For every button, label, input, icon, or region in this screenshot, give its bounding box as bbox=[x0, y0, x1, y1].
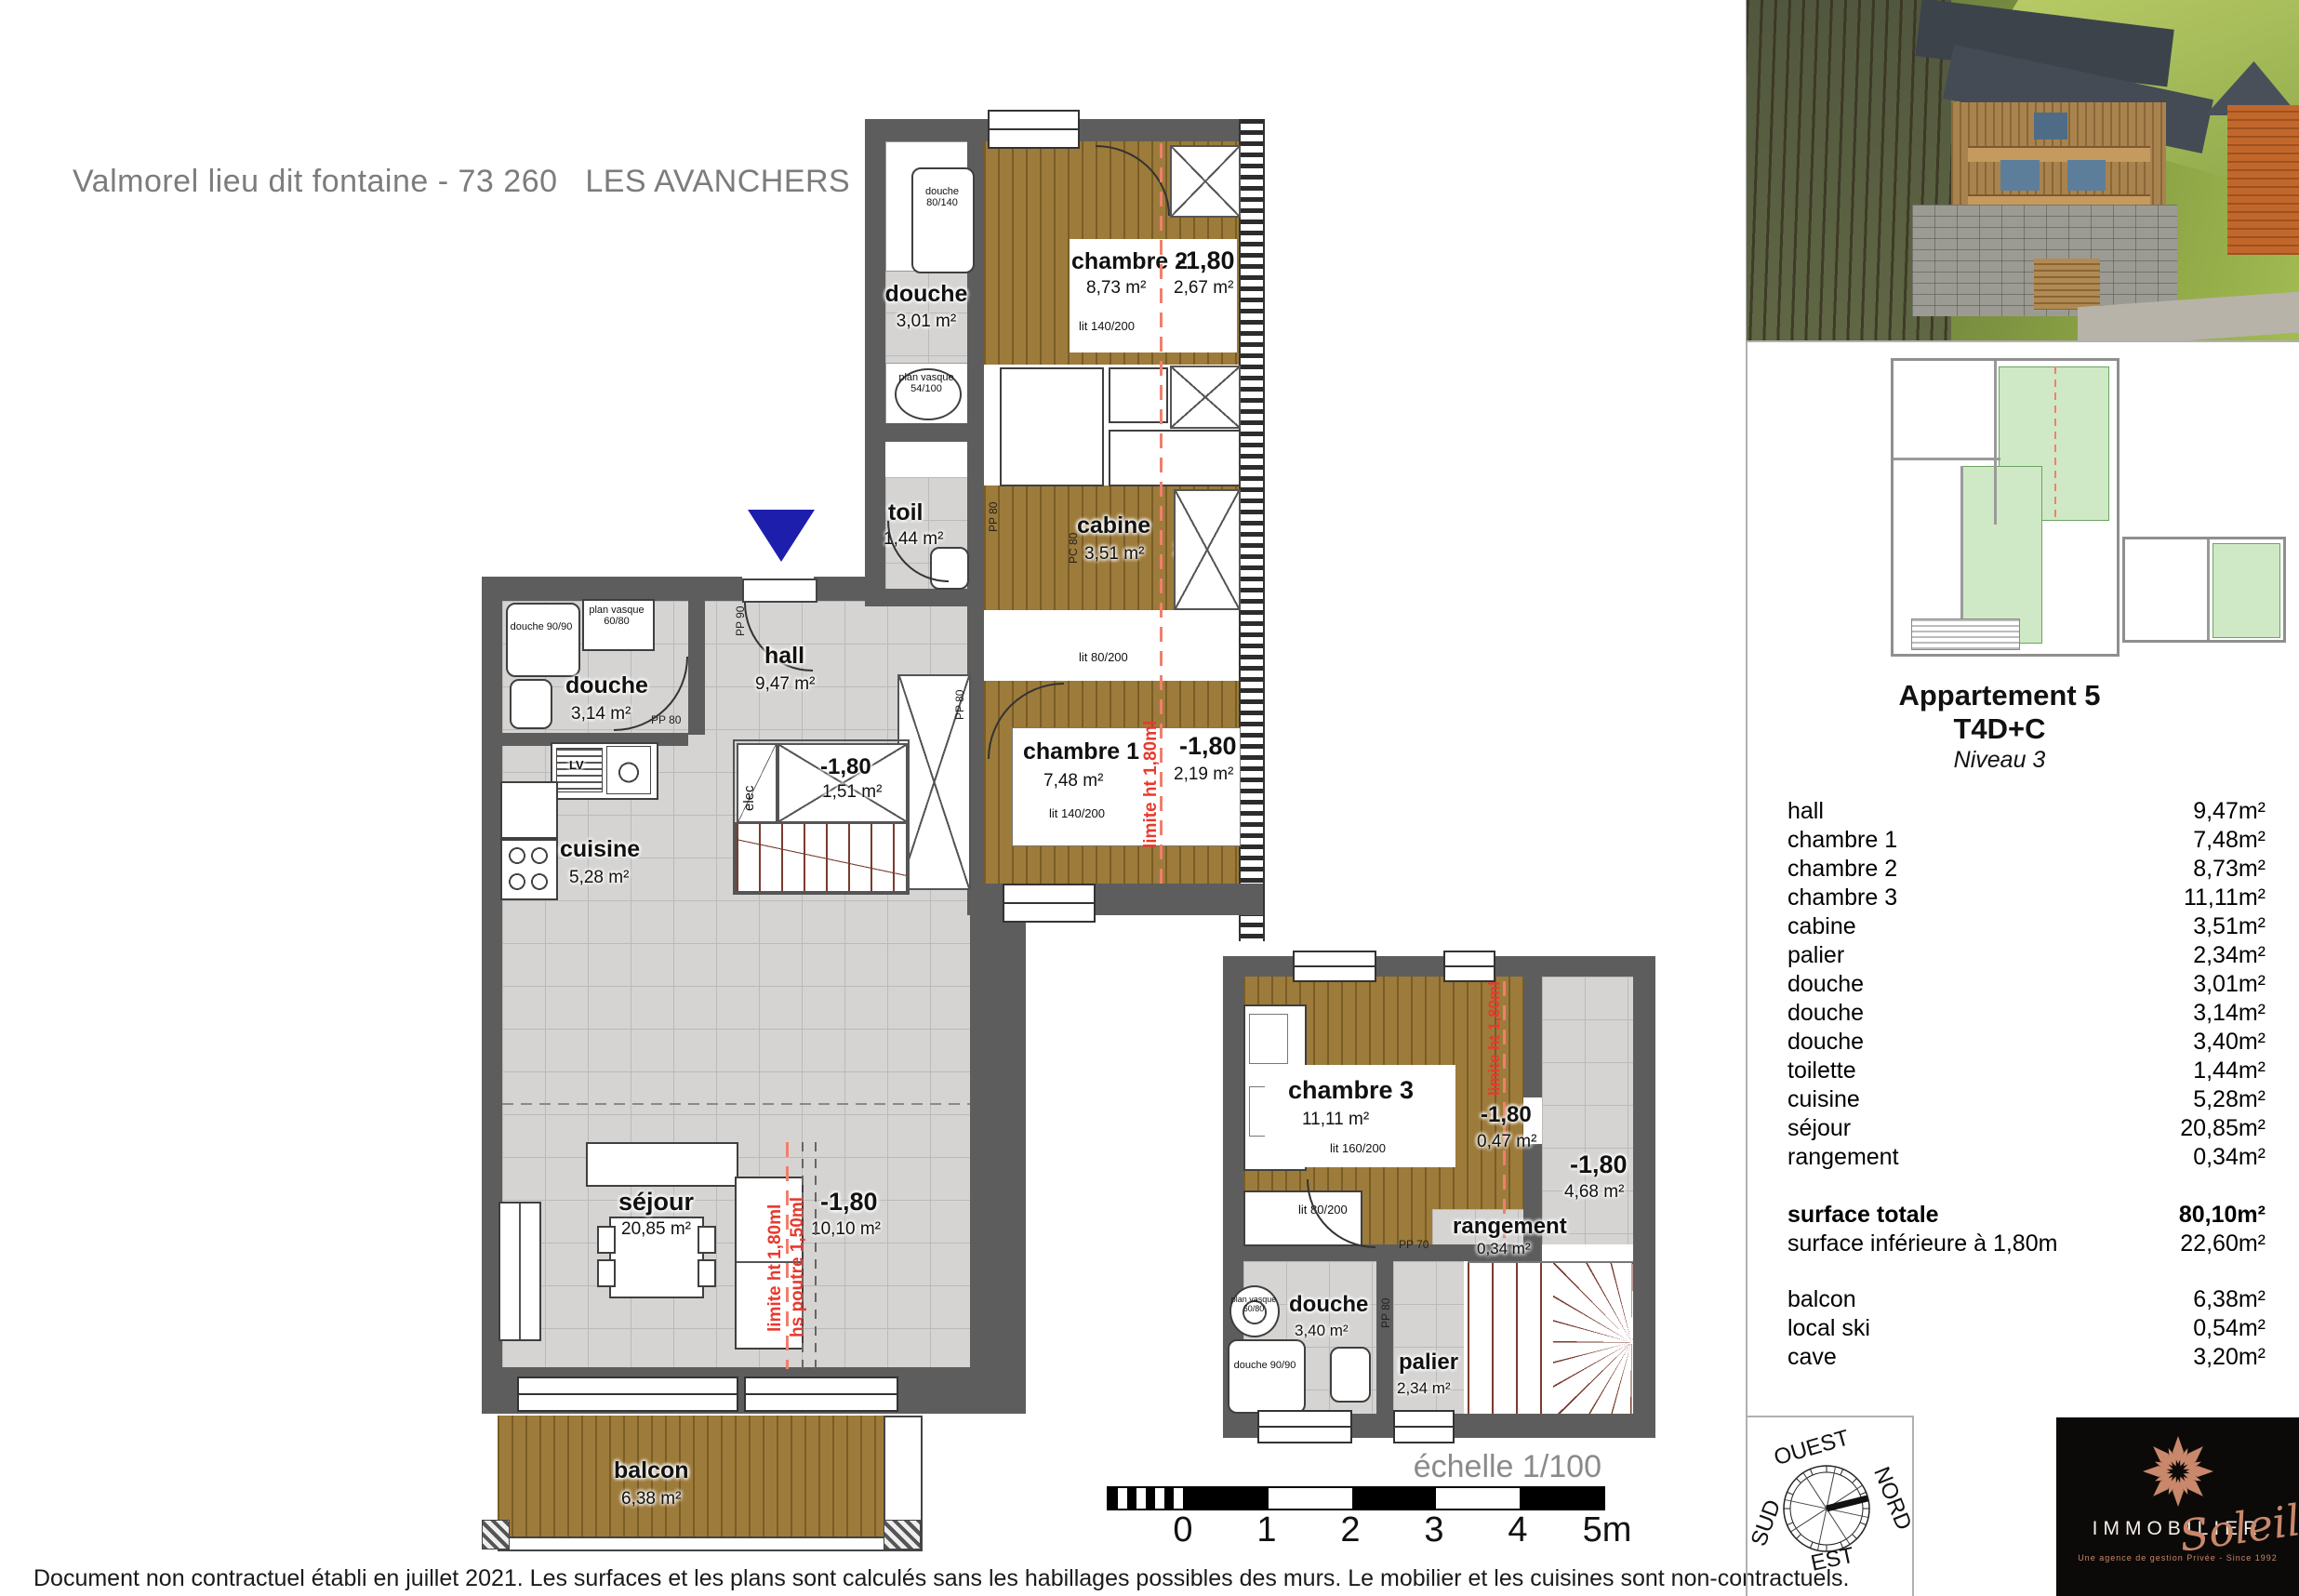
wardrobe-x bbox=[1174, 489, 1241, 610]
surface-label: chambre 2 bbox=[1787, 856, 1897, 882]
low-area-sejour: 10,10 m² bbox=[811, 1220, 881, 1239]
low-area-chambre2: 2,67 m² bbox=[1174, 279, 1233, 298]
surface-label: surface totale bbox=[1787, 1202, 1939, 1228]
wall bbox=[688, 601, 705, 735]
window bbox=[744, 1377, 898, 1412]
fridge bbox=[500, 781, 558, 839]
surface-value: 22,60m² bbox=[2180, 1230, 2266, 1257]
wall bbox=[1376, 1261, 1393, 1414]
scale-tick: 1 bbox=[1229, 1512, 1304, 1549]
surface-label: douche bbox=[1787, 1000, 1864, 1026]
surface-row: chambre 17,48m² bbox=[1787, 827, 2266, 854]
surface-value: 11,11m² bbox=[2184, 884, 2266, 911]
compass-label-south: SUD bbox=[1747, 1496, 1786, 1549]
window bbox=[1443, 951, 1495, 982]
surface-value: 1,44m² bbox=[2193, 1057, 2266, 1084]
window bbox=[1393, 1410, 1455, 1443]
surface-value: 0,34m² bbox=[2193, 1144, 2266, 1171]
scale-tick: 0 bbox=[1146, 1512, 1220, 1549]
beam-note-sejour: hs poutre 1,50ml bbox=[789, 1170, 807, 1337]
scale-caption: échelle 1/100 bbox=[1349, 1451, 1601, 1484]
keyplan-highlight bbox=[1962, 466, 2042, 644]
room-area-cabine: 3,51 m² bbox=[1084, 545, 1144, 564]
wall-hatched-east bbox=[1239, 119, 1265, 941]
room-name-chambre2: chambre 2 bbox=[1071, 249, 1188, 273]
annex-row: local ski0,54m² bbox=[1787, 1315, 2266, 1342]
bed-pillow bbox=[1249, 1014, 1288, 1064]
room-area-cuisine: 5,28 m² bbox=[569, 869, 629, 887]
surface-label: hall bbox=[1787, 798, 1824, 824]
photo-divider bbox=[1747, 340, 2299, 342]
elec-label: elec bbox=[742, 755, 757, 811]
low-area-closet: 1,51 m² bbox=[822, 783, 882, 802]
surface-value: 8,73m² bbox=[2193, 856, 2266, 883]
room-name-douche-340: douche bbox=[1289, 1293, 1368, 1316]
tv-unit bbox=[498, 1202, 541, 1341]
surface-label: douche bbox=[1787, 1029, 1864, 1055]
surface-row: rangement0,34m² bbox=[1787, 1144, 2266, 1171]
sideboard bbox=[586, 1142, 738, 1187]
low-height-sejour: -1,80 bbox=[820, 1189, 878, 1215]
wall-entry bbox=[814, 577, 874, 601]
surface-under-row: surface inférieure à 1,80m22,60m² bbox=[1787, 1230, 2266, 1257]
stairs-winder bbox=[1553, 1261, 1633, 1416]
door-label-pp80: PP 80 bbox=[954, 675, 966, 720]
low-height-chambre2: -1,80 bbox=[1177, 247, 1235, 273]
surface-row: cuisine5,28m² bbox=[1787, 1086, 2266, 1113]
chalet-window bbox=[2000, 160, 2040, 191]
wall bbox=[1223, 956, 1655, 977]
low-height-degagement: -1,80 bbox=[1570, 1151, 1628, 1177]
compass-needle bbox=[1827, 1498, 1867, 1509]
chalet-garage-door bbox=[2034, 259, 2100, 310]
window bbox=[1257, 1410, 1352, 1443]
room-name-hall: hall bbox=[764, 644, 804, 668]
shower-tray-label: douche 90/90 bbox=[510, 621, 573, 632]
wall bbox=[1633, 977, 1655, 1423]
vasque-label: plan vasque 54/100 bbox=[888, 372, 964, 395]
wall bbox=[1523, 977, 1542, 1097]
room-area-chambre1: 7,48 m² bbox=[1043, 772, 1103, 791]
surface-label: séjour bbox=[1787, 1115, 1851, 1141]
surface-row: toilette1,44m² bbox=[1787, 1057, 2266, 1084]
disclaimer: Document non contractuel établi en juill… bbox=[33, 1566, 1849, 1590]
keyplan-limit-line bbox=[2054, 366, 2056, 519]
window bbox=[517, 1377, 738, 1412]
compass-box-right bbox=[1912, 1416, 1914, 1596]
room-area-douche-340: 3,40 m² bbox=[1295, 1323, 1349, 1339]
room-area-chambre3: 11,11 m² bbox=[1302, 1111, 1369, 1129]
page-title: Valmorel lieu dit fontaine - 73 260 LES … bbox=[73, 166, 850, 199]
balcony-rail bbox=[498, 1536, 887, 1551]
surface-row: séjour20,85m² bbox=[1787, 1115, 2266, 1142]
limit-note-chambre3: limite ht 1,80ml bbox=[1486, 984, 1503, 1096]
scale-tick: 5m bbox=[1561, 1512, 1654, 1549]
room-name-palier: palier bbox=[1399, 1350, 1458, 1374]
wardrobe-x bbox=[1170, 366, 1241, 429]
balcony-post bbox=[482, 1520, 510, 1549]
limit-note-sejour: limite ht 1,80ml bbox=[766, 1164, 785, 1332]
room-name-cabine: cabine bbox=[1077, 513, 1150, 538]
surface-row: chambre 28,73m² bbox=[1787, 856, 2266, 883]
surface-label: local ski bbox=[1787, 1315, 1870, 1341]
door-label-pp70: PP 70 bbox=[1399, 1239, 1429, 1251]
chair bbox=[698, 1226, 716, 1254]
beam-line bbox=[815, 1142, 817, 1369]
bed-label-chambre1: lit 140/200 bbox=[1049, 807, 1105, 820]
bedzone-cabine bbox=[984, 610, 1239, 681]
keyplan-main bbox=[1891, 358, 2120, 657]
balcony-deck bbox=[498, 1416, 884, 1544]
room-area-palier: 2,34 m² bbox=[1397, 1380, 1451, 1397]
room-name-chambre3: chambre 3 bbox=[1288, 1077, 1414, 1103]
keyplan-upper bbox=[2122, 537, 2286, 643]
surface-value: 9,47m² bbox=[2193, 798, 2266, 825]
bed bbox=[1000, 367, 1104, 486]
neighbor-chalet-wall bbox=[2227, 105, 2299, 255]
floor-degagement bbox=[1542, 977, 1633, 1244]
bed bbox=[1109, 430, 1241, 486]
surface-label: palier bbox=[1787, 942, 1844, 968]
room-area-chambre2: 8,73 m² bbox=[1086, 279, 1146, 298]
room-name-douche-haut: douche bbox=[884, 282, 969, 306]
surface-value: 2,34m² bbox=[2193, 942, 2266, 969]
apartment-title: Appartement 5 bbox=[1787, 681, 2212, 712]
wc bbox=[510, 679, 552, 729]
annex-row: balcon6,38m² bbox=[1787, 1286, 2266, 1313]
bed-label-chambre2: lit 140/200 bbox=[1079, 320, 1135, 333]
surface-label: toilette bbox=[1787, 1057, 1856, 1084]
surface-label: douche bbox=[1787, 971, 1864, 997]
low-area-degagement: 4,68 m² bbox=[1564, 1183, 1624, 1202]
shower-tray-label: douche 90/90 bbox=[1233, 1360, 1296, 1371]
chalet-window bbox=[2067, 160, 2106, 191]
door-label-pp80: PP 80 bbox=[988, 487, 1000, 532]
bed-label-160: lit 160/200 bbox=[1330, 1142, 1386, 1155]
surface-value: 3,51m² bbox=[2193, 913, 2266, 940]
surface-value: 3,20m² bbox=[2193, 1344, 2266, 1371]
shower-tray-label: douche 80/140 bbox=[915, 186, 969, 209]
scale-tick: 2 bbox=[1313, 1512, 1388, 1549]
agency-logo: IMMOBILIER Soleil Une agence de gestion … bbox=[2056, 1417, 2299, 1596]
surface-label: chambre 3 bbox=[1787, 884, 1897, 911]
surface-row: douche3,14m² bbox=[1787, 1000, 2266, 1027]
low-area-chambre3: 0,47 m² bbox=[1477, 1133, 1536, 1151]
chalet-window bbox=[2034, 113, 2067, 140]
low-height-chambre3: -1,80 bbox=[1481, 1103, 1532, 1126]
wc bbox=[1330, 1347, 1371, 1403]
surface-label: cuisine bbox=[1787, 1086, 1860, 1112]
room-area-rangement: 0,34 m² bbox=[1477, 1241, 1531, 1257]
door-label-pp90: PP 90 bbox=[735, 592, 747, 636]
room-name-rangement: rangement bbox=[1453, 1215, 1567, 1238]
surface-label: cabine bbox=[1787, 913, 1856, 939]
surface-label: cave bbox=[1787, 1344, 1837, 1370]
limit-line bbox=[1160, 143, 1163, 884]
surface-label: balcon bbox=[1787, 1286, 1856, 1312]
entry-marker-triangle bbox=[748, 510, 815, 562]
stairs-level3 bbox=[735, 822, 908, 893]
surface-value: 20,85m² bbox=[2180, 1115, 2266, 1142]
keyplan-balcony bbox=[1911, 618, 2020, 650]
low-height-closet: -1,80 bbox=[820, 755, 871, 778]
door-label-pc80: PC 80 bbox=[1068, 519, 1080, 564]
compass-rose: OUEST NORD SUD EST bbox=[1747, 1421, 1910, 1594]
wall bbox=[865, 423, 984, 442]
stairs-upper bbox=[1468, 1261, 1553, 1416]
limit-note-chambre1: limite ht 1,80ml bbox=[1142, 699, 1161, 848]
room-area-hall: 9,47 m² bbox=[755, 675, 815, 694]
balcony-post bbox=[884, 1520, 921, 1549]
shower-tray-80140 bbox=[911, 167, 975, 273]
surface-label: surface inférieure à 1,80m bbox=[1787, 1230, 2057, 1257]
keyplan-wall bbox=[1994, 361, 1997, 525]
surface-value: 3,14m² bbox=[2193, 1000, 2266, 1027]
chalet-photo bbox=[1747, 0, 2299, 340]
window bbox=[1293, 951, 1376, 982]
surface-value: 6,38m² bbox=[2193, 1286, 2266, 1313]
chair bbox=[597, 1226, 616, 1254]
room-name-balcon: balcon bbox=[614, 1458, 689, 1483]
compass-label-west: OUEST bbox=[1771, 1425, 1852, 1470]
keyplan-wall bbox=[1960, 466, 1963, 642]
window bbox=[1003, 884, 1096, 923]
plan-document-page: Valmorel lieu dit fontaine - 73 260 LES … bbox=[0, 0, 2299, 1596]
room-area-balcon: 6,38 m² bbox=[621, 1490, 681, 1509]
sunburst-icon bbox=[2135, 1429, 2221, 1514]
apartment-level: Niveau 3 bbox=[1787, 748, 2212, 772]
scale-bar bbox=[1183, 1486, 1605, 1510]
dishwasher-label: LV bbox=[569, 759, 584, 772]
room-area-sejour: 20,85 m² bbox=[621, 1220, 691, 1239]
wall bbox=[865, 119, 885, 606]
shower-tray-9090 bbox=[506, 603, 580, 677]
wall bbox=[865, 589, 984, 606]
surface-row: cabine3,51m² bbox=[1787, 913, 2266, 940]
annex-row: cave3,20m² bbox=[1787, 1344, 2266, 1371]
surface-value: 7,48m² bbox=[2193, 827, 2266, 854]
surface-value: 80,10m² bbox=[2179, 1202, 2266, 1229]
compass-label-north: NORD bbox=[1868, 1463, 1910, 1534]
room-area-douche-haut: 3,01 m² bbox=[884, 313, 969, 331]
surface-label: chambre 1 bbox=[1787, 827, 1897, 853]
door-label-pp80: PP 80 bbox=[1380, 1285, 1392, 1328]
scale-tick: 3 bbox=[1397, 1512, 1471, 1549]
compass-label-east: EST bbox=[1809, 1543, 1857, 1576]
surface-row: palier2,34m² bbox=[1787, 942, 2266, 969]
scale-tick: 4 bbox=[1481, 1512, 1555, 1549]
wall-entry bbox=[482, 577, 742, 601]
chalet-balcony-rail bbox=[1968, 146, 2150, 162]
sink bbox=[606, 746, 651, 794]
room-name-cuisine: cuisine bbox=[560, 837, 640, 861]
surface-label: rangement bbox=[1787, 1144, 1899, 1170]
sunburst-petals bbox=[2143, 1436, 2213, 1507]
surface-row: douche3,40m² bbox=[1787, 1029, 2266, 1056]
shower-tray-9090 bbox=[1228, 1339, 1306, 1414]
surface-total-row: surface totale80,10m² bbox=[1787, 1202, 2266, 1229]
keyplan-wall bbox=[2207, 539, 2210, 640]
keyplan-highlight bbox=[2213, 543, 2280, 637]
entry-door bbox=[742, 579, 817, 603]
window bbox=[988, 110, 1080, 149]
chair bbox=[698, 1259, 716, 1287]
vasque-label: plan vasque 60/80 bbox=[584, 605, 649, 628]
surface-value: 5,28m² bbox=[2193, 1086, 2266, 1113]
vasque-label: plan vasque 60/80 bbox=[1226, 1295, 1282, 1313]
surface-value: 0,54m² bbox=[2193, 1315, 2266, 1342]
surface-row: chambre 311,11m² bbox=[1787, 884, 2266, 911]
wall-east-sejour bbox=[970, 915, 1026, 1375]
surface-value: 3,40m² bbox=[2193, 1029, 2266, 1056]
surface-row: douche3,01m² bbox=[1787, 971, 2266, 998]
scale-bar-pre bbox=[1107, 1486, 1187, 1510]
bed-label-cabine: lit 80/200 bbox=[1079, 651, 1128, 664]
stove bbox=[500, 839, 558, 900]
chair bbox=[597, 1259, 616, 1287]
keyplan-wall bbox=[1894, 458, 2000, 460]
low-area-chambre1: 2,19 m² bbox=[1174, 765, 1233, 784]
compass-box-top bbox=[1747, 1416, 1912, 1417]
surface-row: hall9,47m² bbox=[1787, 798, 2266, 825]
section-line bbox=[502, 1103, 970, 1105]
apartment-type: T4D+C bbox=[1787, 714, 2212, 745]
wardrobe-x bbox=[1170, 145, 1241, 218]
logo-tagline: Une agence de gestion Privée - Since 199… bbox=[2056, 1553, 2299, 1563]
surface-value: 3,01m² bbox=[2193, 971, 2266, 998]
room-name-sejour: séjour bbox=[618, 1189, 694, 1215]
low-height-chambre1: -1,80 bbox=[1179, 733, 1237, 759]
